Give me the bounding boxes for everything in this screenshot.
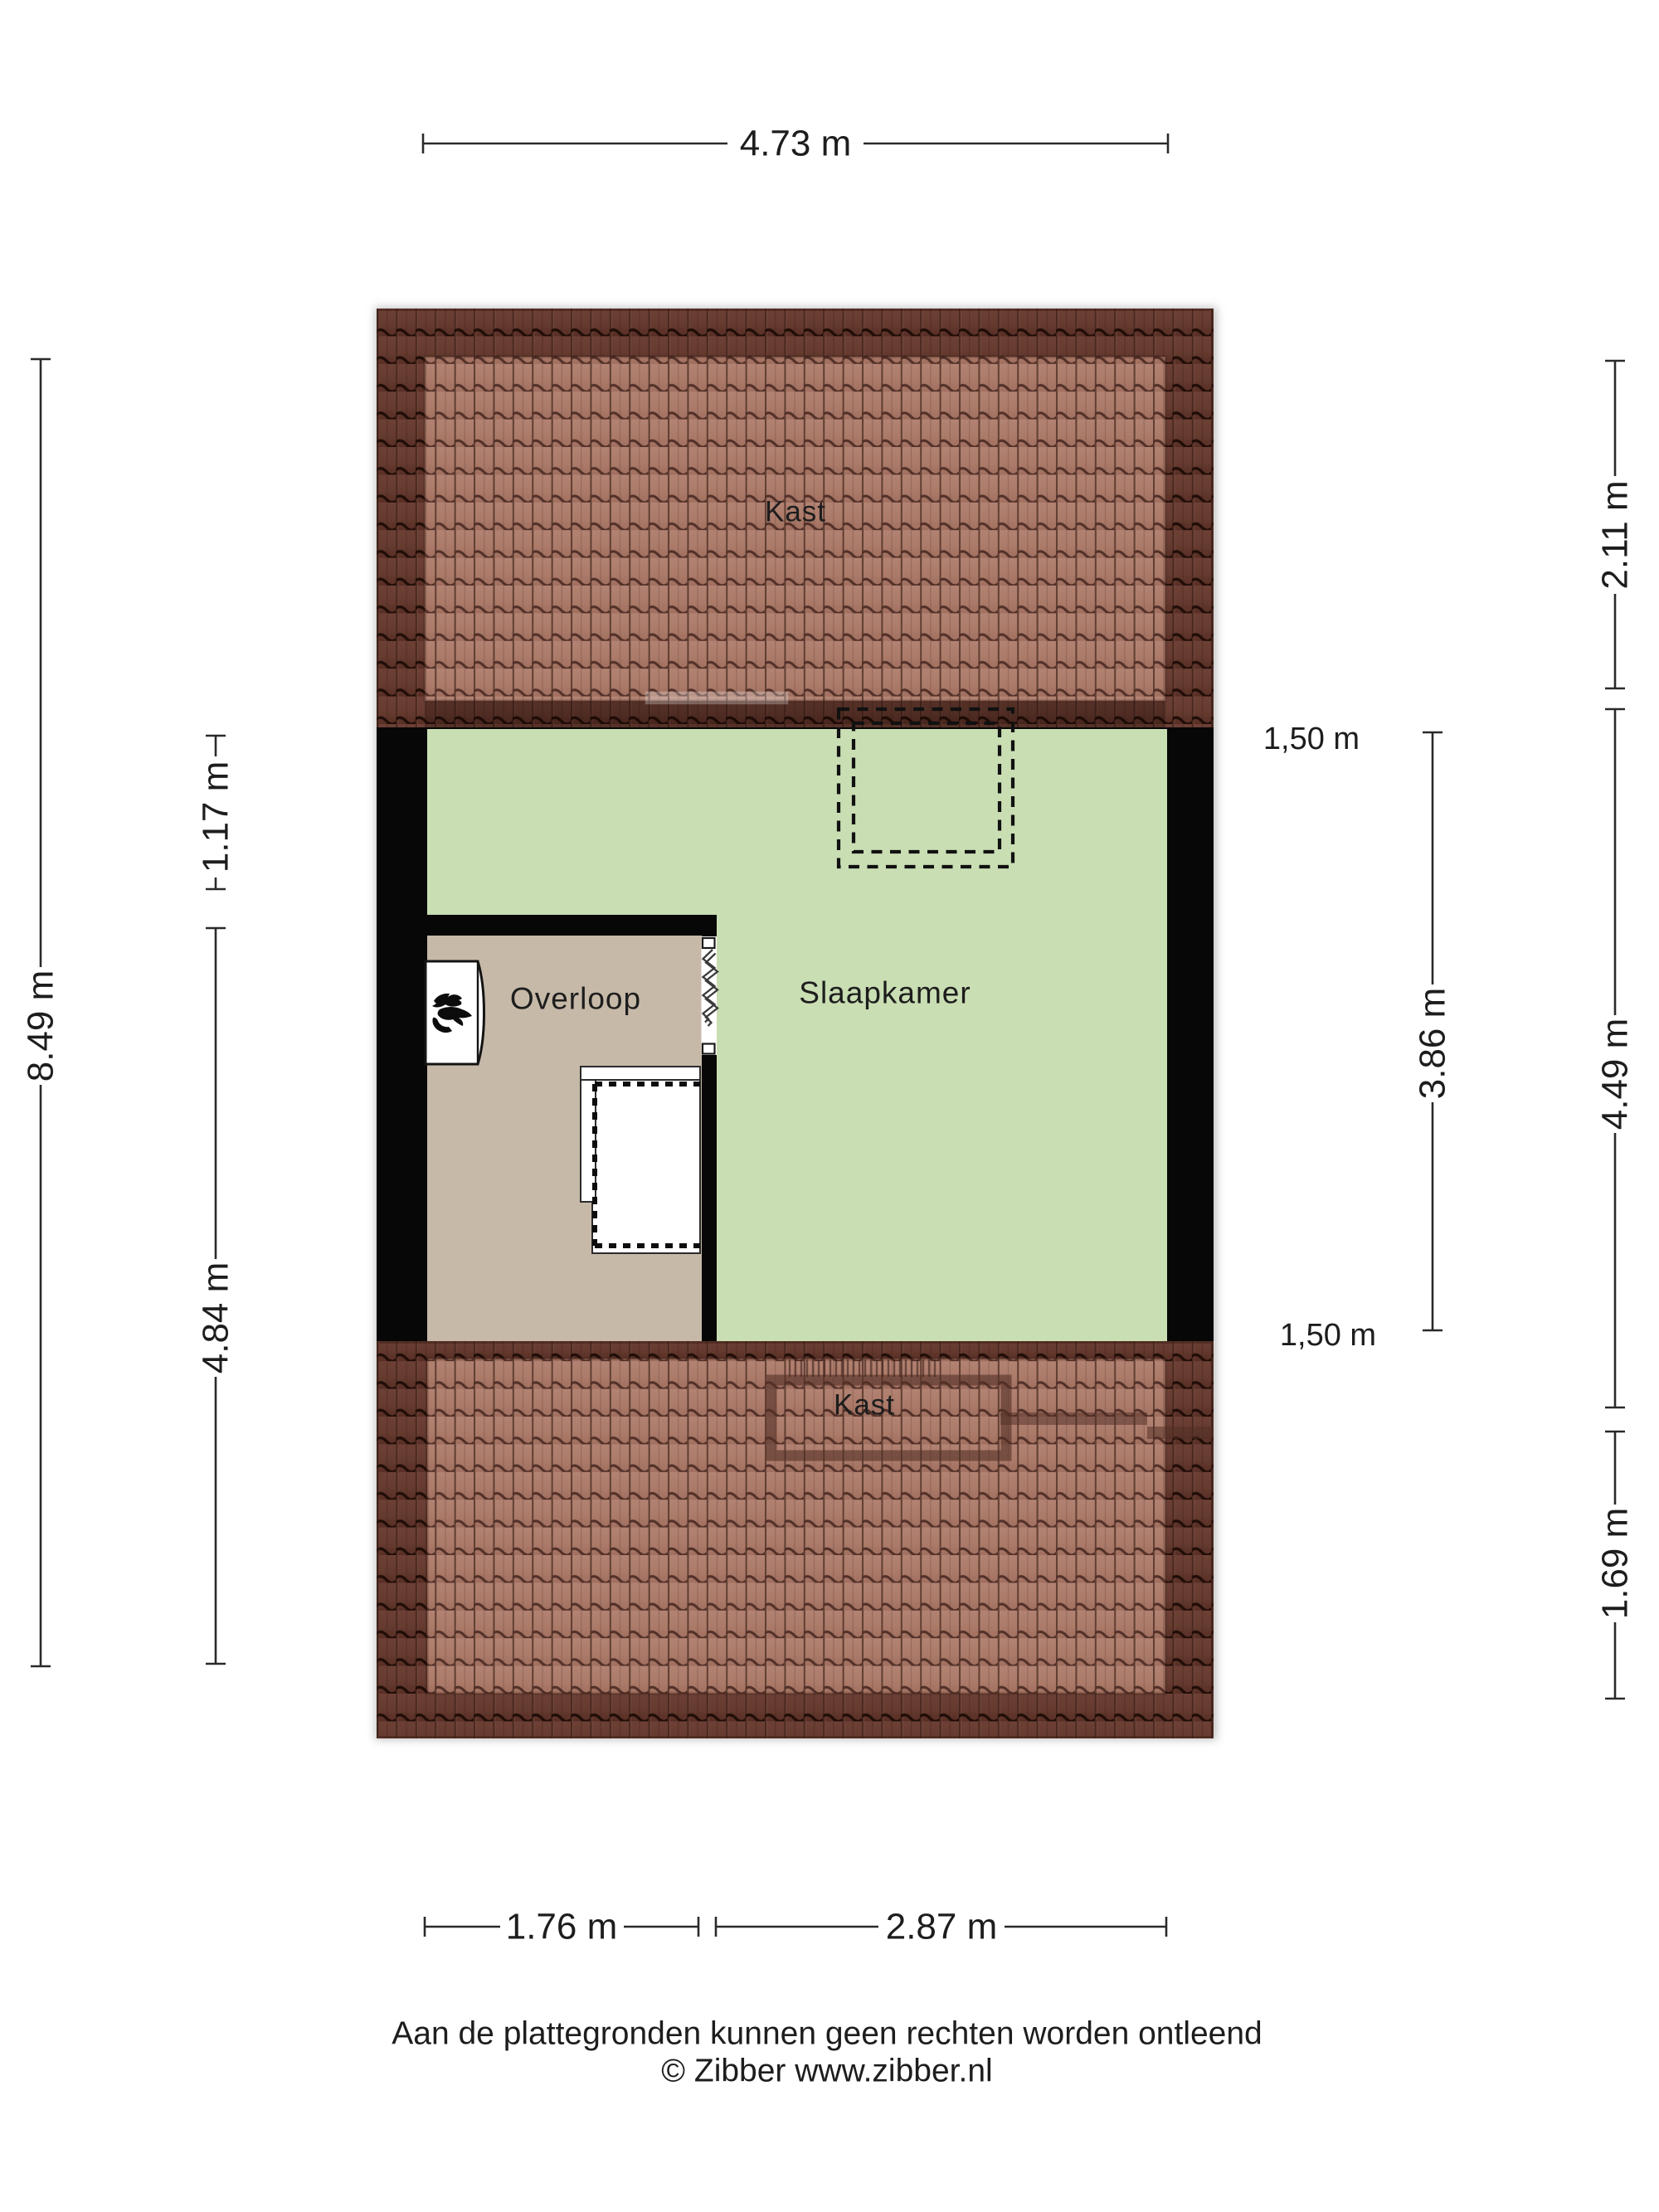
svg-text:© Zibber www.zibber.nl: © Zibber www.zibber.nl [661, 2054, 992, 2089]
svg-text:Overloop: Overloop [510, 982, 641, 1016]
svg-text:1.69 m: 1.69 m [1595, 1508, 1636, 1620]
svg-text:4.49 m: 4.49 m [1595, 1018, 1636, 1130]
svg-text:1,50 m: 1,50 m [1263, 722, 1360, 756]
svg-text:Kast: Kast [834, 1389, 895, 1422]
svg-text:1.76 m: 1.76 m [506, 1907, 618, 1947]
svg-text:Slaapkamer: Slaapkamer [799, 976, 971, 1010]
svg-text:Kast: Kast [765, 496, 826, 528]
svg-text:1,50 m: 1,50 m [1280, 1318, 1376, 1353]
svg-text:1.17 m: 1.17 m [196, 761, 236, 873]
svg-text:4.84 m: 4.84 m [196, 1262, 236, 1374]
svg-text:8.49 m: 8.49 m [21, 970, 61, 1082]
svg-text:Aan de plattegronden kunnen ge: Aan de plattegronden kunnen geen rechten… [392, 2016, 1262, 2052]
svg-text:2.11 m: 2.11 m [1595, 480, 1636, 589]
svg-text:4.73 m: 4.73 m [740, 124, 852, 164]
svg-text:2.87 m: 2.87 m [886, 1907, 998, 1947]
svg-text:3.86 m: 3.86 m [1413, 988, 1453, 1100]
